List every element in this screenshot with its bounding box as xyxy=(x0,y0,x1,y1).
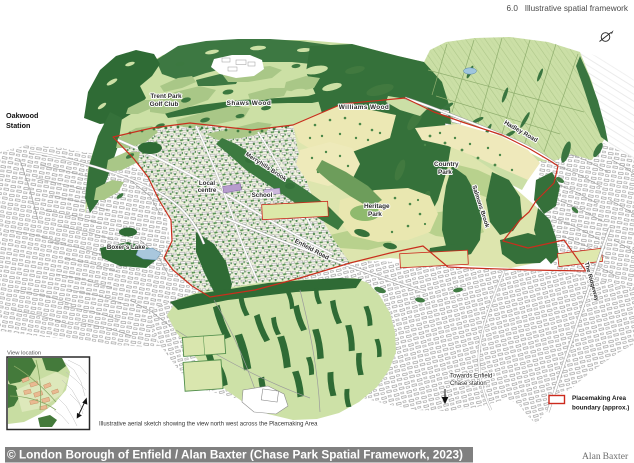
svg-text:Towards Enfield: Towards Enfield xyxy=(450,374,492,380)
svg-text:Placemaking Area: Placemaking Area xyxy=(572,395,627,402)
svg-text:Country: Country xyxy=(434,161,459,168)
svg-text:Trent Park: Trent Park xyxy=(150,93,182,100)
svg-text:Park: Park xyxy=(438,169,452,176)
svg-text:Chase station: Chase station xyxy=(450,381,487,387)
svg-text:School: School xyxy=(252,192,273,199)
svg-text:Station: Station xyxy=(6,121,30,130)
svg-text:Heritage: Heritage xyxy=(364,203,390,210)
svg-text:Williams Wood: Williams Wood xyxy=(339,104,389,111)
svg-text:Shaws Wood: Shaws Wood xyxy=(227,100,272,107)
svg-text:Oakwood: Oakwood xyxy=(6,111,38,120)
svg-text:Golf Club: Golf Club xyxy=(150,101,179,108)
svg-text:centre: centre xyxy=(198,187,217,194)
svg-text:Illustrative aerial sketch sho: Illustrative aerial sketch showing the v… xyxy=(99,422,318,428)
svg-text:Park: Park xyxy=(368,211,382,218)
svg-text:6.0 Illustrative spatial fra: 6.0 Illustrative spatial framework xyxy=(507,4,629,13)
svg-text:Local: Local xyxy=(199,180,215,187)
svg-text:Boxer's Lake: Boxer's Lake xyxy=(107,244,146,251)
svg-text:© London Borough of Enfield /: © London Borough of Enfield / Alan Baxte… xyxy=(7,448,463,462)
svg-text:Alan Baxter: Alan Baxter xyxy=(582,451,629,462)
svg-text:View location: View location xyxy=(7,351,41,357)
svg-text:boundary (approx.): boundary (approx.) xyxy=(572,405,629,412)
